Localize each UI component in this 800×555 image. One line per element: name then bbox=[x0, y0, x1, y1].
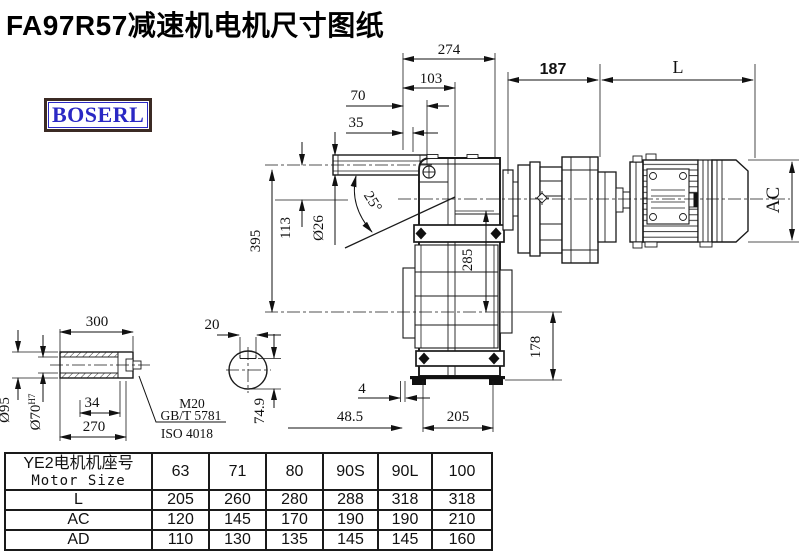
cell-AC-90l: 190 bbox=[378, 510, 432, 530]
size-column-90s: 90S bbox=[323, 453, 378, 490]
dim-label-20: 20 bbox=[205, 317, 220, 333]
table-row-AD: AD 110 130 135 145 145 160 bbox=[5, 530, 492, 550]
dim-label-35: 35 bbox=[349, 115, 364, 131]
dim-label-74-9: 74.9 bbox=[252, 398, 268, 424]
dim-label-L: L bbox=[673, 57, 684, 77]
dim-label-70h7-tol: H7 bbox=[27, 393, 37, 404]
cell-AC-63: 120 bbox=[152, 510, 209, 530]
size-column-100: 100 bbox=[432, 453, 492, 490]
dim-label-103: 103 bbox=[420, 71, 443, 87]
cell-AC-90s: 190 bbox=[323, 510, 378, 530]
r57-gear-unit bbox=[503, 157, 630, 263]
cell-AD-90s: 145 bbox=[323, 530, 378, 550]
dim-label-285: 285 bbox=[460, 249, 476, 272]
dim-label-70h7: Ø70H7 bbox=[27, 393, 44, 430]
table-row-L: L 205 260 280 288 318 318 bbox=[5, 490, 492, 510]
cell-L-71: 260 bbox=[209, 490, 266, 510]
cell-L-80: 280 bbox=[266, 490, 323, 510]
row-label-AD: AD bbox=[5, 530, 152, 550]
cell-AD-80: 135 bbox=[266, 530, 323, 550]
dim-label-25deg: 25° bbox=[360, 189, 385, 215]
table-row-AC: AC 120 145 170 190 190 210 bbox=[5, 510, 492, 530]
size-column-63: 63 bbox=[152, 453, 209, 490]
dim-label-187: 187 bbox=[540, 61, 567, 78]
cell-L-90s: 288 bbox=[323, 490, 378, 510]
dimension-lines bbox=[18, 59, 792, 437]
dim-label-AC: AC bbox=[763, 187, 784, 213]
size-column-71: 71 bbox=[209, 453, 266, 490]
cell-AD-71: 130 bbox=[209, 530, 266, 550]
dim-label-274: 274 bbox=[438, 42, 461, 58]
dim-label-4: 4 bbox=[358, 381, 366, 397]
size-column-90l: 90L bbox=[378, 453, 432, 490]
dim-label-26: Ø26 bbox=[311, 215, 327, 241]
cell-L-100: 318 bbox=[432, 490, 492, 510]
dim-label-34: 34 bbox=[85, 395, 101, 411]
drawing-sheet: FA97R57减速机电机尺寸图纸 BOSERL bbox=[0, 0, 800, 555]
cell-AC-71: 145 bbox=[209, 510, 266, 530]
dim-label-48-5: 48.5 bbox=[337, 409, 363, 425]
dim-label-70h7-base: Ø70 bbox=[28, 405, 44, 431]
table-header-en: Motor Size bbox=[6, 473, 151, 489]
dim-label-395: 395 bbox=[248, 230, 264, 253]
cell-AC-100: 210 bbox=[432, 510, 492, 530]
dim-label-95: Ø95 bbox=[0, 397, 13, 423]
cell-AD-63: 110 bbox=[152, 530, 209, 550]
dim-label-113: 113 bbox=[278, 217, 294, 239]
dim-label-178: 178 bbox=[528, 336, 544, 359]
row-label-AC: AC bbox=[5, 510, 152, 530]
cell-L-90l: 318 bbox=[378, 490, 432, 510]
extension-lines bbox=[12, 53, 799, 441]
dim-label-70: 70 bbox=[351, 88, 366, 104]
cell-L-63: 205 bbox=[152, 490, 209, 510]
table-header-motor-size: YE2电机机座号 Motor Size bbox=[5, 453, 152, 490]
motor-size-table: YE2电机机座号 Motor Size 63 71 80 90S 90L 100… bbox=[4, 452, 493, 551]
thread-spec-gbt: GB/T 5781 bbox=[161, 408, 222, 423]
dim-label-205: 205 bbox=[447, 409, 470, 425]
size-column-80: 80 bbox=[266, 453, 323, 490]
motor bbox=[630, 154, 748, 248]
row-label-L: L bbox=[5, 490, 152, 510]
cell-AD-90l: 145 bbox=[378, 530, 432, 550]
dim-label-300: 300 bbox=[86, 314, 109, 330]
table-header-cn: YE2电机机座号 bbox=[6, 455, 151, 473]
cell-AC-80: 170 bbox=[266, 510, 323, 530]
thread-spec-iso: ISO 4018 bbox=[161, 426, 213, 441]
cell-AD-100: 160 bbox=[432, 530, 492, 550]
gearbox-housing bbox=[403, 155, 512, 386]
dim-label-270: 270 bbox=[83, 419, 106, 435]
